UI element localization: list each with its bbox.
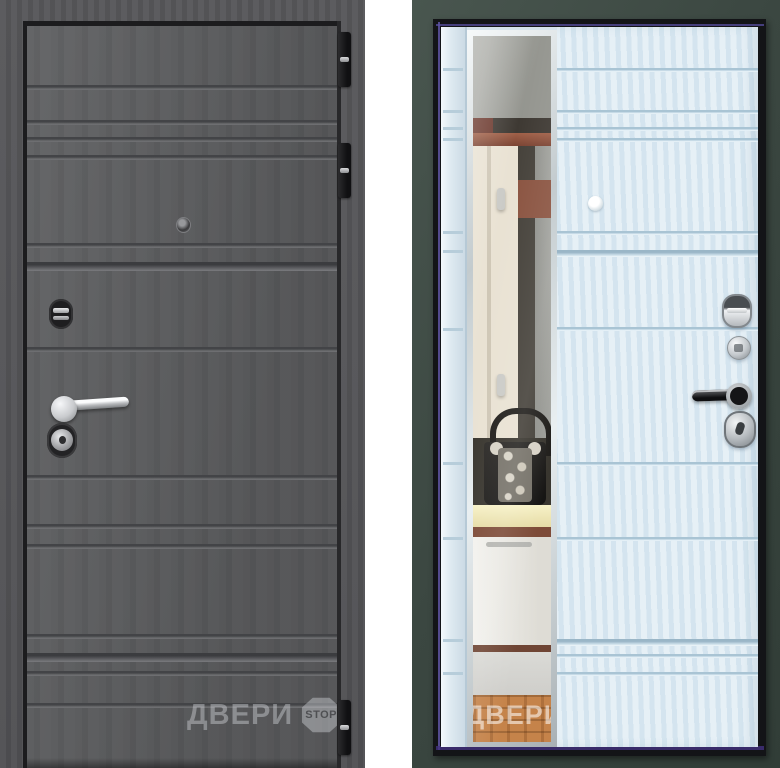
groove-line — [557, 327, 758, 331]
mirror-reflection: ДВЕРИ — [473, 36, 551, 742]
stile-groove — [443, 127, 463, 130]
groove-step — [557, 639, 758, 646]
stile-groove — [443, 138, 463, 141]
right-door-leaf: ДВЕРИ — [441, 27, 758, 747]
groove-line — [27, 524, 337, 529]
left-door-leaf: ДВЕРИ STOP — [27, 26, 337, 768]
peephole-icon — [588, 196, 603, 211]
stile-groove — [443, 110, 463, 113]
groove-step — [27, 653, 337, 662]
groove-line — [27, 137, 337, 142]
hinge-top — [338, 32, 351, 87]
mirror-sheen — [473, 36, 551, 742]
door-handle-rose-inner — [730, 387, 748, 405]
stile-groove — [443, 462, 463, 465]
right-door-photo: ДВЕРИ — [412, 0, 780, 768]
groove-line — [27, 120, 337, 125]
groove-line — [557, 462, 758, 466]
deadbolt-thumbturn — [722, 294, 752, 328]
groove-line — [27, 544, 337, 549]
groove-line — [557, 537, 758, 541]
groove-line — [27, 85, 337, 90]
deadbolt-thumbturn — [49, 299, 73, 329]
hinge-bottom — [338, 700, 351, 755]
door-product-photo: ДВЕРИ STOP — [0, 0, 780, 768]
groove-step — [27, 262, 337, 271]
stop-octagon-icon: STOP — [301, 697, 337, 733]
groove-line — [27, 671, 337, 676]
thumbturn-knob-shadow — [53, 316, 69, 320]
hinge-pin — [340, 168, 349, 173]
groove-line — [27, 634, 337, 639]
edge-accent-top — [436, 24, 764, 26]
groove-line — [557, 672, 758, 676]
groove-step — [557, 250, 758, 257]
thumbturn-knob — [53, 308, 69, 313]
left-door-right-gap — [337, 21, 341, 768]
watermark-brand: ДВЕРИ — [187, 699, 293, 732]
groove-line — [557, 138, 758, 142]
edge-accent-left — [438, 22, 440, 750]
thumbturn-knob — [727, 308, 747, 313]
left-stile — [441, 27, 467, 747]
mirror-bevel: ДВЕРИ — [467, 30, 557, 747]
stile-groove — [443, 328, 463, 331]
door-handle-rose — [51, 396, 77, 422]
groove-line — [27, 155, 337, 160]
lock-cylinder-oval — [724, 411, 756, 448]
groove-line — [557, 110, 758, 114]
lock-cylinder — [47, 423, 77, 458]
hinge-middle — [338, 143, 351, 198]
stile-groove — [443, 231, 463, 234]
groove-line — [27, 243, 337, 248]
stile-groove — [443, 68, 463, 71]
lock-cylinder-round — [727, 336, 751, 360]
peephole-icon — [176, 217, 191, 233]
hinge-pin — [340, 57, 349, 62]
keyhole-icon — [734, 421, 746, 436]
watermark: ДВЕРИ STOP — [187, 697, 337, 733]
left-door-photo: ДВЕРИ STOP — [0, 0, 365, 768]
stile-groove — [443, 639, 463, 642]
cylinder-engraving — [734, 344, 743, 352]
stile-groove — [443, 672, 463, 675]
hinge-pin — [340, 725, 349, 730]
door-handle-rose — [726, 383, 752, 409]
groove-line — [27, 475, 337, 480]
watermark-badge: STOP — [305, 709, 337, 721]
groove-line — [557, 231, 758, 235]
stile-groove — [443, 537, 463, 540]
keyhole-icon — [59, 436, 66, 444]
groove-line — [557, 127, 758, 131]
bottom-shadow — [27, 758, 337, 768]
groove-line — [557, 68, 758, 72]
stile-groove — [443, 250, 463, 253]
groove-line — [557, 654, 758, 658]
groove-line — [27, 347, 337, 352]
